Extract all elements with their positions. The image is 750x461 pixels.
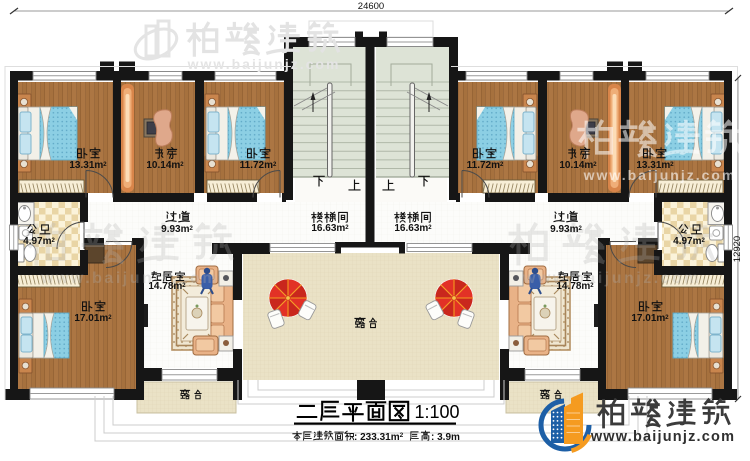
svg-text:16.63m2: 16.63m2	[394, 223, 432, 234]
svg-text:11.72m2: 11.72m2	[240, 160, 277, 171]
svg-text:14.78m2: 14.78m2	[556, 281, 594, 292]
svg-text:1:100: 1:100	[414, 402, 459, 422]
svg-text:4.97m2: 4.97m2	[673, 236, 705, 247]
svg-text:24600: 24600	[358, 1, 384, 12]
svg-text:www.baijunjz.com: www.baijunjz.com	[40, 270, 219, 287]
svg-text:www.baijunjz.com: www.baijunjz.com	[590, 429, 735, 445]
svg-text:: 3.9m: : 3.9m	[431, 432, 460, 443]
svg-text:13.31m2: 13.31m2	[69, 160, 107, 171]
svg-text:17.01m2: 17.01m2	[74, 313, 112, 324]
svg-text:10.14m2: 10.14m2	[559, 160, 597, 171]
svg-text:: 233.31m2: : 233.31m2	[354, 432, 404, 443]
svg-text:14.78m2: 14.78m2	[148, 281, 186, 292]
svg-text:9.93m2: 9.93m2	[550, 224, 582, 235]
svg-text:www.baijunjz.com: www.baijunjz.com	[522, 270, 701, 287]
svg-text:11.72m2: 11.72m2	[467, 160, 504, 171]
svg-text:9.93m2: 9.93m2	[161, 224, 193, 235]
svg-text:16.63m2: 16.63m2	[311, 223, 349, 234]
svg-text:12920: 12920	[732, 236, 743, 262]
svg-text:17.01m2: 17.01m2	[631, 313, 669, 324]
svg-text:www.baijunjz.com: www.baijunjz.com	[187, 56, 341, 72]
svg-text:13.31m2: 13.31m2	[636, 160, 674, 171]
svg-text:4.97m2: 4.97m2	[23, 236, 55, 247]
svg-text:10.14m2: 10.14m2	[146, 160, 184, 171]
